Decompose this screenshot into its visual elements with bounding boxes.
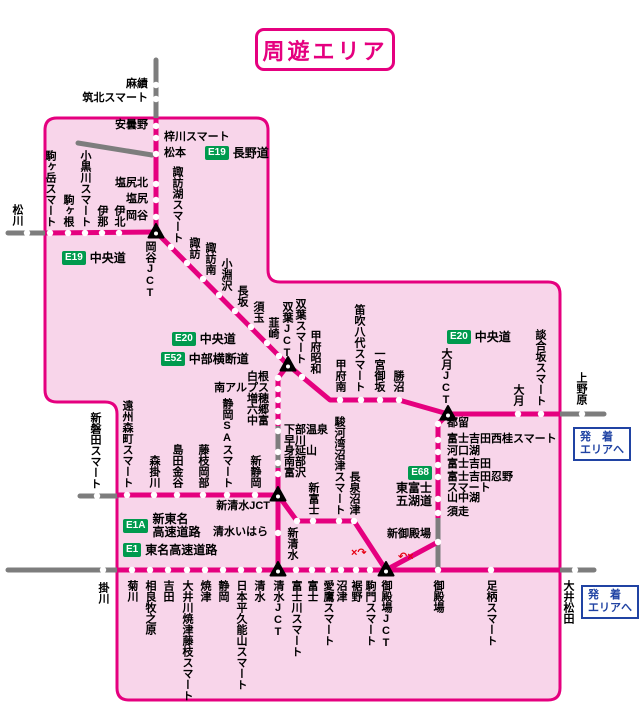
station-label: 塩尻北 <box>115 178 148 189</box>
road-name: 東富士五湖道 <box>396 482 432 508</box>
station-label: 小淵沢 <box>220 258 232 291</box>
station-label: 相良牧之原 <box>144 580 156 635</box>
road-name: 中部横断道 <box>189 353 249 366</box>
station-label: 塩尻 <box>126 194 148 205</box>
road-number-badge: E19 <box>205 146 229 160</box>
station-label: 日本平久能山スマート <box>235 580 247 690</box>
station-label: 諏訪南 <box>204 242 216 275</box>
road-name: 中央道 <box>200 333 236 346</box>
station-label: 駒ヶ岳スマート <box>44 150 56 227</box>
station-label: 富士吉田 <box>447 459 491 470</box>
station-label: 上野原 <box>575 372 587 405</box>
station-label: 駒門スマート <box>364 580 376 646</box>
station-label: 駒ヶ根 <box>62 194 74 227</box>
station-label: 長坂 <box>236 285 248 307</box>
station-label: 談合坂スマート <box>534 329 546 406</box>
no-transfer-mark: ×↷ <box>351 548 367 559</box>
road-number-badge: E68 <box>408 466 432 480</box>
station-label: 甲府南 <box>334 359 346 392</box>
station-label: 清水いはら <box>213 527 268 538</box>
depart-arrive-area-text: 発 着 <box>588 589 632 602</box>
station-label: 新御殿場 <box>387 529 431 540</box>
tour-area-map: 麻績筑北スマート安曇野梓川スマート松本塩尻北塩尻岡谷松川駒ヶ岳スマート駒ヶ根小黒… <box>0 0 640 724</box>
station-label: 須玉 <box>252 301 264 323</box>
station-label: 新富士 <box>307 482 319 515</box>
station-label: 新磐田スマート <box>89 412 101 489</box>
road-number-badge: E1 <box>123 543 141 557</box>
road-name: 新東名高速道路 <box>152 513 200 539</box>
road-label: E19長野道 <box>205 146 269 160</box>
station-label: 静岡SAスマート <box>221 398 233 488</box>
station-label: 安曇野 <box>115 120 148 131</box>
station-label: 富士吉田忍野スマート <box>447 472 513 494</box>
station-label: 清水JCT <box>272 580 284 638</box>
road-number-badge: E19 <box>62 251 86 265</box>
station-label: 小黒川スマート <box>79 150 91 227</box>
map-title: 周遊エリア <box>262 34 387 66</box>
station-label: 梓川スマート <box>164 132 230 143</box>
station-label: 一宮御坂 <box>373 348 385 392</box>
station-label: 都留 <box>447 418 469 429</box>
no-transfer-mark: ↶× <box>398 552 414 563</box>
station-label: 掛川 <box>97 582 109 604</box>
station-label: 静岡 <box>217 580 229 602</box>
station-label: 大井松田 <box>562 580 574 624</box>
station-label: 遠州森町スマート <box>121 400 133 488</box>
depart-arrive-area-link[interactable]: 発 着エリアへ <box>581 585 639 619</box>
depart-arrive-area-text: 発 着 <box>580 431 624 444</box>
station-label: 麻績 <box>126 79 148 90</box>
road-label: E20中央道 <box>172 332 236 346</box>
station-label: 笛吹八代スマート <box>353 304 365 392</box>
road-label: E20中央道 <box>447 330 511 344</box>
station-label: 大井川焼津藤枝スマート <box>181 580 193 701</box>
station-label: 中富 <box>247 416 269 427</box>
station-label: 富沢 <box>284 468 306 479</box>
station-label: 足柄スマート <box>485 580 497 646</box>
depart-arrive-area-text: エリアへ <box>580 444 624 457</box>
road-number-badge: E20 <box>447 330 471 344</box>
station-label: 焼津 <box>199 580 211 602</box>
road-label: E68東富士五湖道 <box>396 466 432 508</box>
station-label: 森掛川 <box>148 455 160 488</box>
station-label: 諏訪湖スマート <box>171 166 183 243</box>
station-label: 大月 <box>512 384 524 406</box>
road-name: 長野道 <box>233 147 269 160</box>
station-label: 富士吉田西桂スマート <box>447 434 557 445</box>
road-label: E52中部横断道 <box>161 352 249 366</box>
road-label: E19中央道 <box>62 251 126 265</box>
station-label: 愛鷹スマート <box>322 580 334 646</box>
road-number-badge: E20 <box>172 332 196 346</box>
station-label: 駿河湾沼津スマート <box>333 416 345 515</box>
station-label: 富士 <box>306 580 318 602</box>
station-label: 御殿場JCT <box>380 580 392 649</box>
road-number-badge: E1A <box>123 519 148 533</box>
road-number-badge: E52 <box>161 352 185 366</box>
station-label: 諏訪 <box>188 237 200 259</box>
station-label: 岡谷 <box>126 211 148 222</box>
map-title-box: 周遊エリア <box>255 28 395 71</box>
station-label: 吉田 <box>162 580 174 602</box>
station-label: 島田金谷 <box>171 444 183 488</box>
road-name: 東名高速道路 <box>145 544 217 557</box>
station-label: 勝沼 <box>392 370 404 392</box>
station-label: 松本 <box>164 148 186 159</box>
station-label: 松川 <box>11 204 23 226</box>
station-label: 御殿場 <box>432 580 444 613</box>
station-label: 伊北 <box>113 205 125 227</box>
station-label: 大月JCT <box>440 348 452 406</box>
road-label: E1東名高速道路 <box>123 543 217 557</box>
depart-arrive-area-link[interactable]: 発 着エリアへ <box>573 427 631 461</box>
station-label: 沼津 <box>335 580 347 602</box>
station-label: 裾野 <box>350 580 362 602</box>
station-label: 清水 <box>253 580 265 602</box>
station-label: 須走 <box>447 507 469 518</box>
station-label: 新清水JCT <box>216 501 270 512</box>
station-label: 富士川スマート <box>290 580 302 657</box>
station-label: 菊川 <box>126 580 138 602</box>
station-label: 下部温泉早川 <box>284 425 328 447</box>
station-label: 伊那 <box>96 205 108 227</box>
station-label: 筑北スマート <box>82 93 148 104</box>
station-label: 新清水 <box>286 527 298 560</box>
road-label: E1A新東名高速道路 <box>123 513 200 539</box>
road-name: 中央道 <box>475 331 511 344</box>
station-label: 岡谷JCT <box>144 241 156 299</box>
station-label: 河口湖 <box>447 446 480 457</box>
road-name: 中央道 <box>90 252 126 265</box>
station-label: 甲府昭和 <box>309 330 321 374</box>
depart-arrive-area-text: エリアへ <box>588 602 632 615</box>
station-label: 双葉JCT <box>281 301 293 359</box>
station-label: 新静岡 <box>249 455 261 488</box>
station-label: 山中湖 <box>447 493 480 504</box>
station-label: 韮崎 <box>267 317 279 339</box>
station-label: 双葉スマート <box>294 298 306 364</box>
station-label: 藤枝岡部 <box>197 444 209 488</box>
station-label: 長泉沼津 <box>348 471 360 515</box>
map-labels-layer: 麻績筑北スマート安曇野梓川スマート松本塩尻北塩尻岡谷松川駒ヶ岳スマート駒ヶ根小黒… <box>0 0 640 724</box>
